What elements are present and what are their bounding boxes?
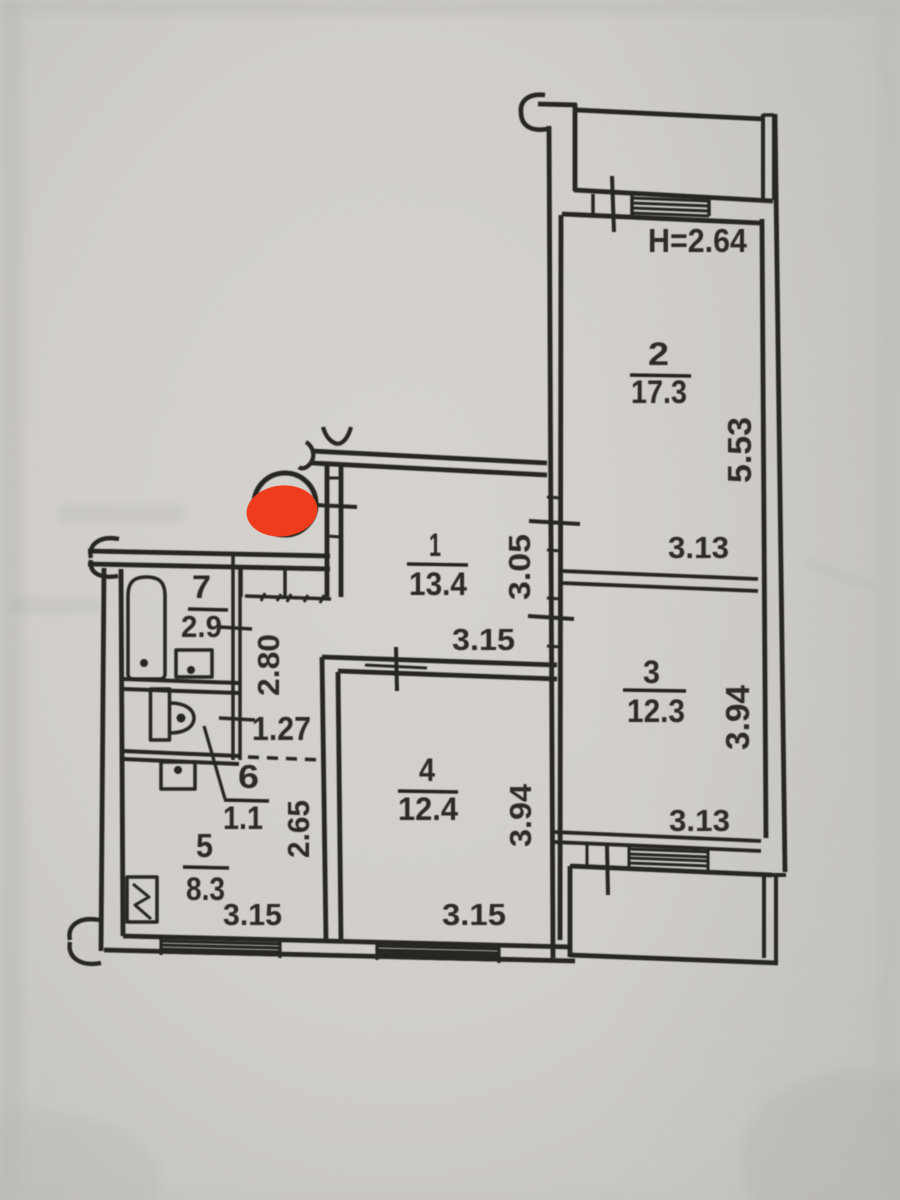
svg-text:7: 7 — [192, 569, 211, 605]
svg-text:3: 3 — [643, 654, 660, 690]
svg-text:5.53: 5.53 — [721, 417, 758, 483]
svg-text:13.4: 13.4 — [409, 566, 467, 602]
svg-text:H=2.64: H=2.64 — [648, 222, 748, 259]
svg-text:1.1: 1.1 — [223, 800, 263, 836]
svg-text:3.15: 3.15 — [223, 897, 282, 932]
svg-text:3.13: 3.13 — [668, 530, 729, 565]
svg-text:3.13: 3.13 — [669, 803, 730, 838]
svg-text:3.94: 3.94 — [503, 783, 538, 847]
svg-text:2.9: 2.9 — [181, 609, 222, 644]
svg-text:17.3: 17.3 — [631, 374, 687, 410]
svg-text:6: 6 — [238, 758, 259, 795]
svg-text:2.65: 2.65 — [281, 800, 316, 858]
svg-text:12.4: 12.4 — [398, 791, 458, 827]
svg-text:12.3: 12.3 — [627, 693, 685, 729]
svg-text:3.15: 3.15 — [442, 897, 506, 932]
svg-text:5: 5 — [196, 827, 213, 864]
svg-text:2.80: 2.80 — [251, 634, 286, 696]
svg-text:2: 2 — [648, 336, 669, 372]
svg-text:3.05: 3.05 — [502, 534, 537, 600]
svg-text:4: 4 — [419, 752, 435, 788]
svg-text:1.27: 1.27 — [252, 710, 311, 747]
svg-text:3.94: 3.94 — [719, 684, 756, 750]
svg-text:8.3: 8.3 — [186, 871, 225, 907]
svg-text:1: 1 — [429, 527, 441, 563]
svg-text:3.15: 3.15 — [452, 622, 515, 657]
